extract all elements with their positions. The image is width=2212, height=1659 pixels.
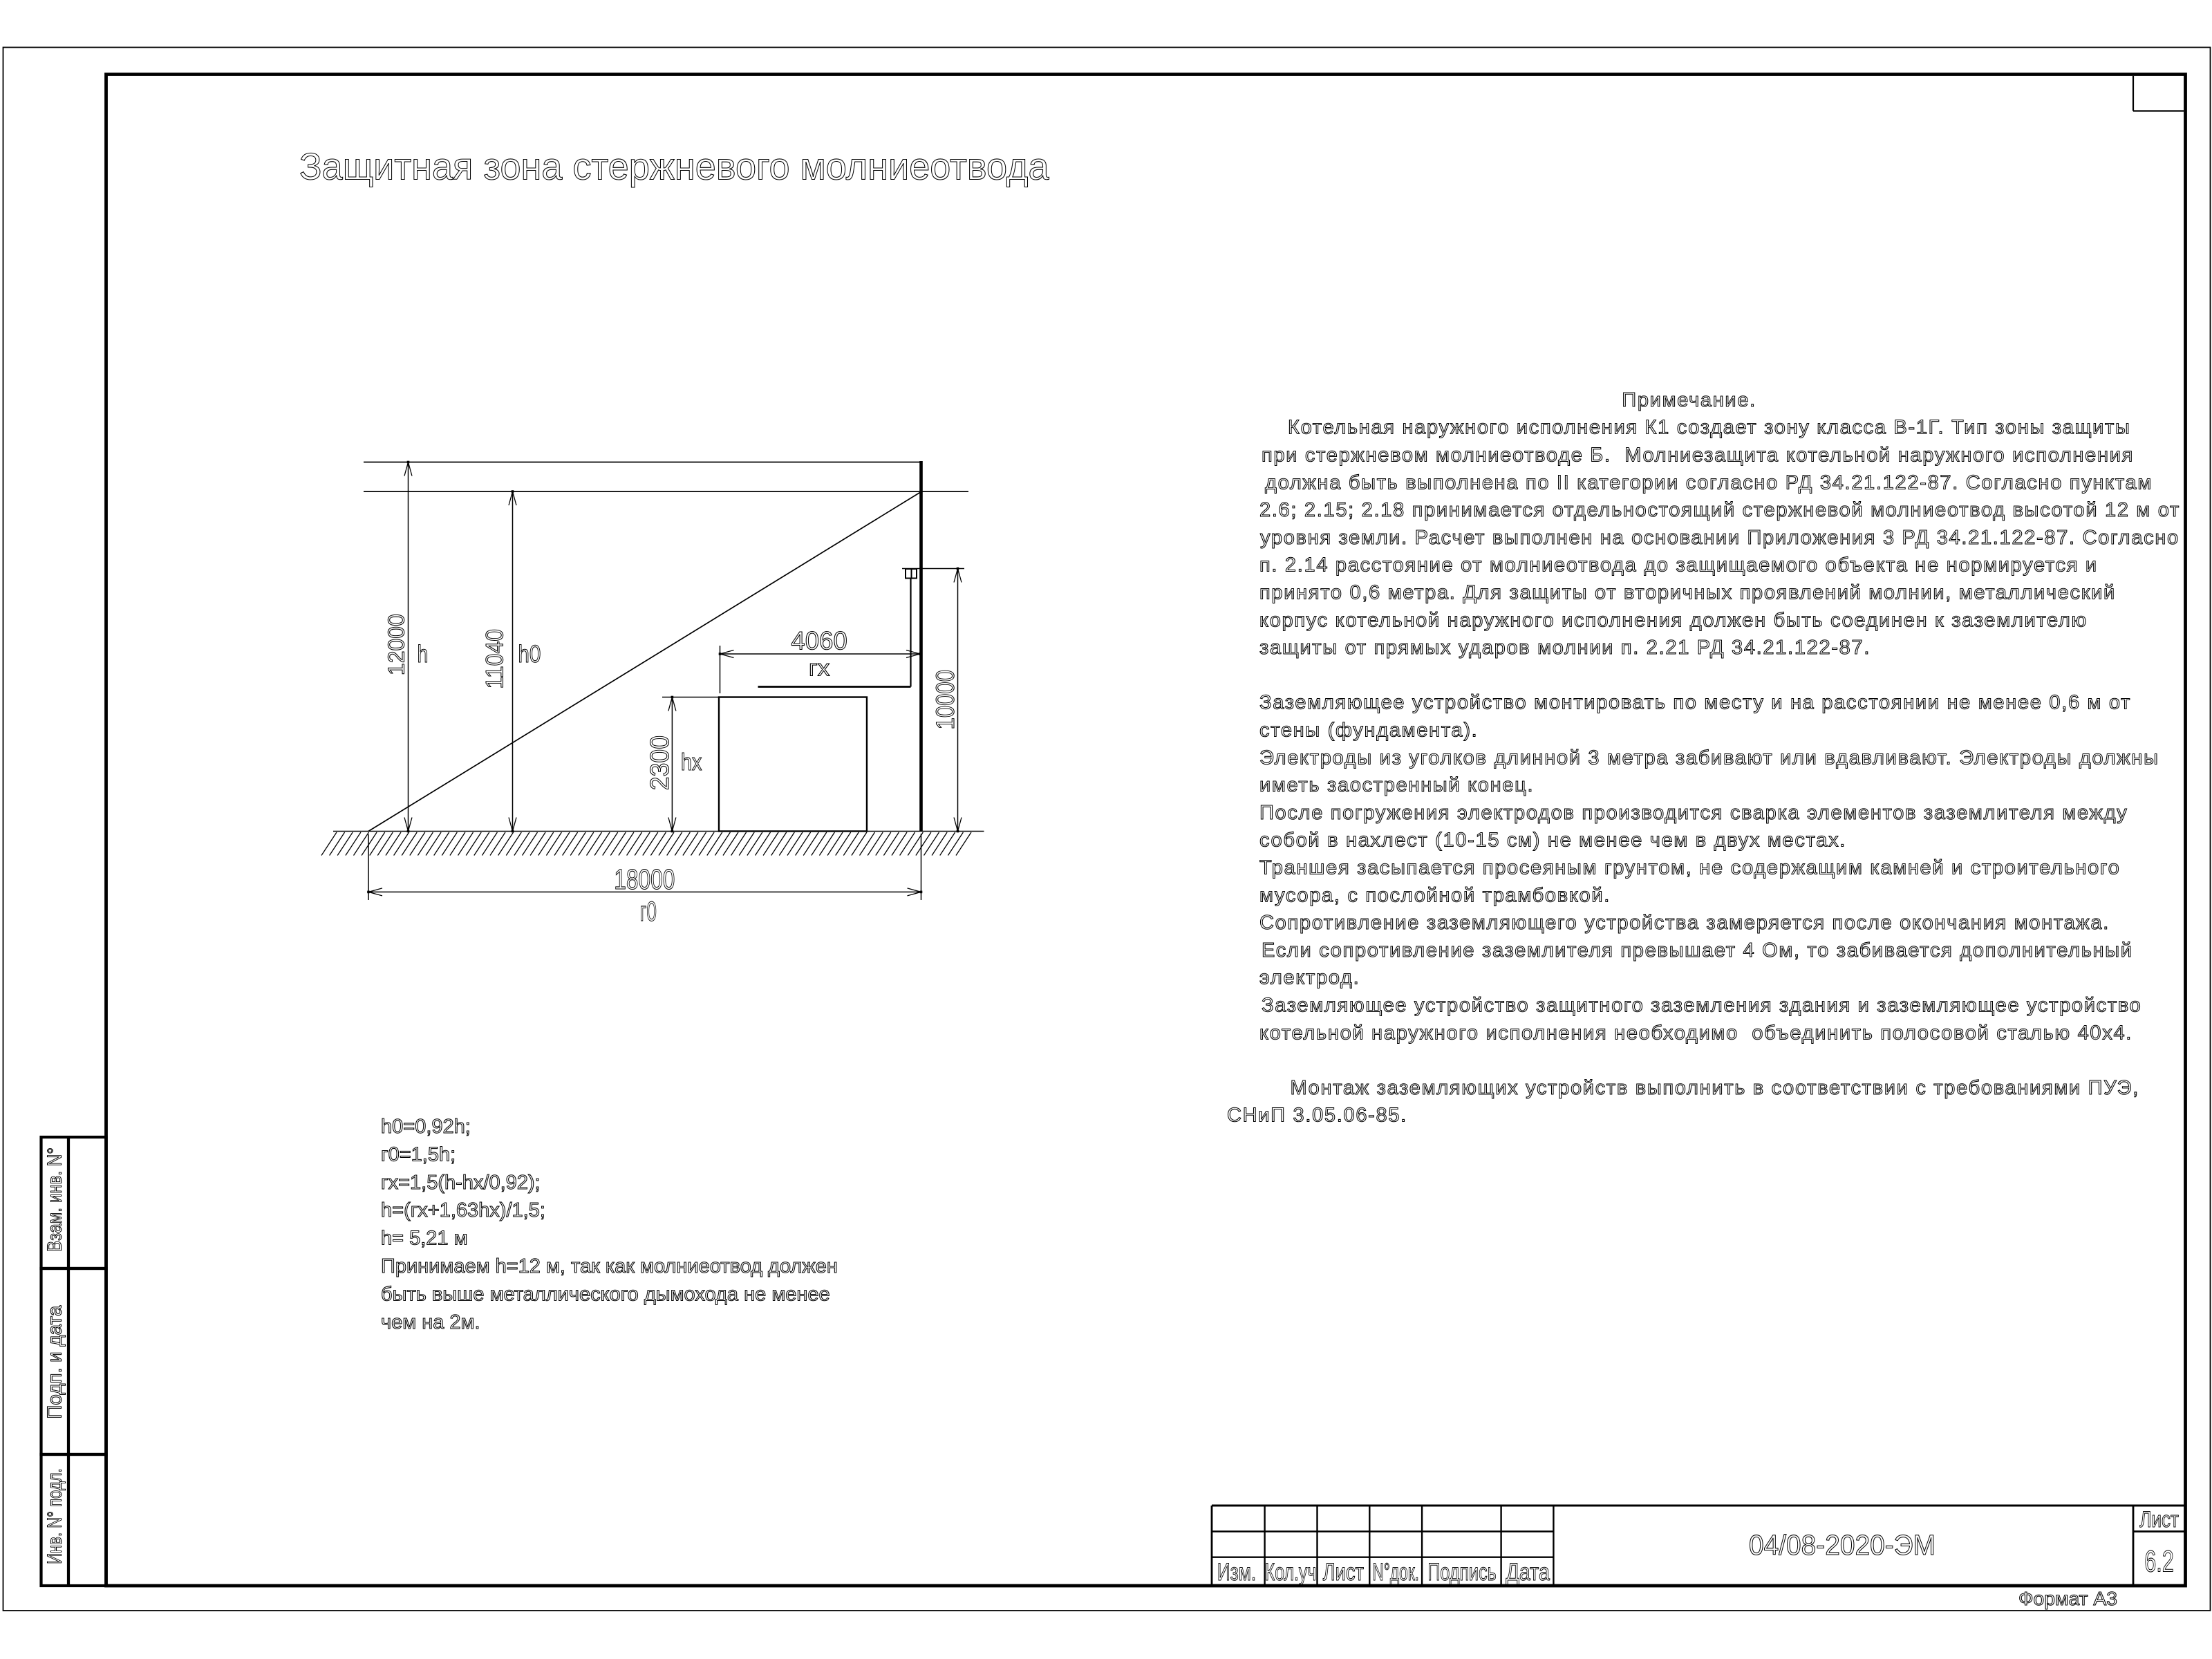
svg-text:Кол.уч: Кол.уч — [1265, 1559, 1316, 1586]
svg-text:hx: hx — [681, 749, 702, 776]
svg-text:Защитная зона стержневого молн: Защитная зона стержневого молниеотвода — [299, 145, 1049, 188]
svg-text:Инв. N° подл.: Инв. N° подл. — [44, 1468, 66, 1564]
svg-text:чем на 2м.: чем на 2м. — [381, 1311, 480, 1333]
svg-text:Если сопротивление заземлителя: Если сопротивление заземлителя превышает… — [1262, 939, 2133, 962]
svg-text:электрод.: электрод. — [1259, 967, 1360, 989]
svg-text:Монтаж заземляющих устройств в: Монтаж заземляющих устройств выполнить в… — [1291, 1077, 2139, 1099]
svg-text:котельной наружного исполнения: котельной наружного исполнения необходим… — [1259, 1022, 2133, 1044]
svg-text:г0=1,5h;: г0=1,5h; — [381, 1143, 456, 1165]
svg-text:при стержневом молниеотводе Б.: при стержневом молниеотводе Б. Молниезащ… — [1262, 444, 2134, 467]
svg-text:Подпись: Подпись — [1427, 1559, 1496, 1586]
svg-text:Дата: Дата — [1506, 1559, 1550, 1586]
svg-text:После погружения электродов пр: После погружения электродов производится… — [1259, 802, 2128, 824]
svg-text:10000: 10000 — [931, 670, 959, 729]
svg-text:Заземляющее устройство защитно: Заземляющее устройство защитного заземле… — [1262, 995, 2141, 1017]
svg-text:Подп. и дата: Подп. и дата — [44, 1305, 66, 1419]
svg-text:h: h — [418, 641, 429, 668]
svg-text:h0=0,92h;: h0=0,92h; — [381, 1116, 471, 1138]
svg-text:корпус котельной наружного исп: корпус котельной наружного исполнения до… — [1259, 609, 2088, 631]
svg-text:гх=1,5(h-hx/0,92);: гх=1,5(h-hx/0,92); — [381, 1172, 541, 1194]
svg-text:2.6; 2.15; 2.18 принимается от: 2.6; 2.15; 2.18 принимается отдельностоя… — [1259, 499, 2180, 521]
svg-text:Лист: Лист — [2139, 1507, 2179, 1532]
svg-text:Принимаем h=12 м, так как молн: Принимаем h=12 м, так как молниеотвод до… — [381, 1255, 838, 1277]
svg-text:N°док.: N°док. — [1372, 1559, 1419, 1586]
svg-text:18000: 18000 — [614, 863, 675, 895]
svg-text:уровня земли. Расчет выполнен: уровня земли. Расчет выполнен на основан… — [1260, 527, 2180, 549]
svg-text:04/08-2020-ЭМ: 04/08-2020-ЭМ — [1749, 1529, 1935, 1561]
svg-text:быть выше металлического дымох: быть выше металлического дымохода не мен… — [381, 1283, 830, 1305]
svg-text:Взам. инв. N°: Взам. инв. N° — [44, 1147, 66, 1252]
svg-text:должна быть выполнена по II ка: должна быть выполнена по II категории со… — [1265, 471, 2153, 494]
svg-text:12000: 12000 — [384, 614, 409, 675]
svg-text:мусора, с послойной трамбовкой: мусора, с послойной трамбовкой. — [1259, 884, 1611, 906]
svg-text:Заземляющее устройство монтиро: Заземляющее устройство монтировать по ме… — [1259, 692, 2131, 714]
svg-text:Траншея засыпается просеяным г: Траншея засыпается просеяным грунтом, не… — [1259, 857, 2120, 879]
svg-text:иметь заостренный конец.: иметь заостренный конец. — [1259, 774, 1534, 796]
svg-text:6.2: 6.2 — [2144, 1545, 2174, 1579]
svg-text:защиты от прямых ударов молнии: защиты от прямых ударов молнии п. 2.21 Р… — [1259, 637, 1871, 659]
svg-text:Сопротивление заземляющего уст: Сопротивление заземляющего устройства за… — [1259, 912, 2110, 934]
svg-text:Формат А3: Формат А3 — [2018, 1588, 2117, 1609]
svg-text:h= 5,21 м: h= 5,21 м — [381, 1228, 468, 1250]
svg-text:стены (фундамента).: стены (фундамента). — [1259, 720, 1478, 742]
svg-text:п. 2.14 расстояние от молниеот: п. 2.14 расстояние от молниеотвода до за… — [1259, 554, 2098, 577]
svg-text:11040: 11040 — [482, 629, 509, 689]
svg-text:СНиП 3.05.06-85.: СНиП 3.05.06-85. — [1227, 1105, 1407, 1127]
svg-text:h0: h0 — [518, 641, 541, 668]
svg-text:Лист: Лист — [1323, 1559, 1364, 1586]
svg-text:гх: гх — [809, 655, 830, 681]
svg-text:собой в нахлест (10-15 см) не: собой в нахлест (10-15 см) не менее чем … — [1259, 829, 1846, 852]
svg-text:4060: 4060 — [791, 626, 847, 655]
svg-text:h=(гх+1,63hx)/1,5;: h=(гх+1,63hx)/1,5; — [381, 1199, 545, 1221]
svg-text:Котельная наружного исполнения: Котельная наружного исполнения К1 создае… — [1288, 417, 2131, 439]
svg-text:Примечание.: Примечание. — [1622, 389, 1756, 411]
svg-text:г0: г0 — [640, 897, 657, 927]
svg-text:Электроды из уголков длинной 3: Электроды из уголков длинной 3 метра заб… — [1259, 747, 2159, 769]
svg-text:Изм.: Изм. — [1217, 1559, 1257, 1586]
svg-text:2300: 2300 — [646, 735, 675, 790]
svg-text:принято 0,6 метра. Для защиты: принято 0,6 метра. Для защиты от вторичн… — [1259, 582, 2116, 604]
